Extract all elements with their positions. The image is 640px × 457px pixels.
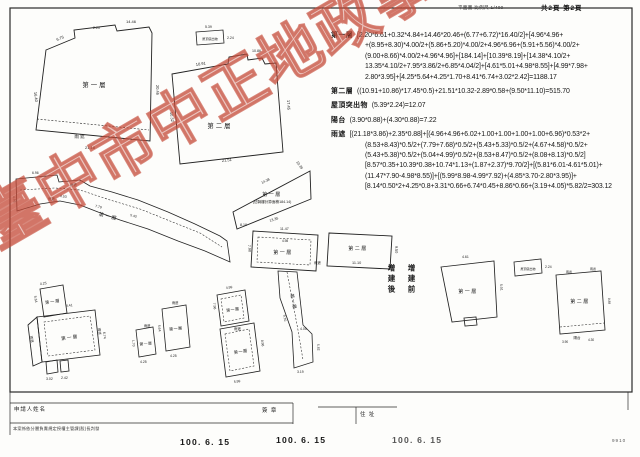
dimension-label: 4.96	[12, 196, 17, 203]
dimension-label: 5.64	[157, 325, 162, 332]
floor2-label: 第二層	[207, 121, 232, 130]
dimension-label: 4.61	[462, 255, 469, 259]
date-stamp: 100. 6. 15	[276, 435, 326, 445]
canopy-calc-line: (8.53+8.43)*0.5/2+(7.79+7.68)*0.5/2+(5.4…	[365, 141, 634, 151]
dimension-label: 2.42	[61, 376, 68, 380]
floor2-label: 第二層	[570, 298, 590, 305]
canopy-calculation: 雨遮 [(21.18*3.86)+2.35*0.88]+[(4.96+4.96+…	[331, 130, 634, 192]
dimension-label: 6.74	[102, 332, 107, 339]
floor1-calc-line: 13.35*4.10/2+7.95*3.86/2+6.85*4.04/2]+[4…	[365, 62, 634, 72]
floor1-calc-label: 第一層	[331, 32, 353, 39]
dimension-label: 8.41	[66, 303, 73, 308]
dimension-label: 7.90	[247, 245, 252, 252]
roof-calc-line: (5.39*2.24)=12.07	[372, 102, 426, 109]
canopy-label: 雨遮	[70, 182, 77, 187]
corridor-band-outline	[16, 175, 230, 262]
dimension-label: 9.70	[282, 314, 287, 321]
dimension-label: 4.05	[300, 327, 307, 331]
dimension-label: 4.25	[170, 354, 177, 358]
dimension-label: 6.96	[32, 171, 39, 175]
floor1-label: 第一層	[226, 305, 240, 313]
canopy-label: 雨遮	[566, 269, 572, 274]
floor1-calculation: 第一層 [2.20*6.61+0.32*4.84+14.46*20.46+(6.…	[331, 31, 634, 83]
roof-calculation: 屋頂突出物 (5.39*2.24)=12.07	[331, 101, 634, 111]
dimension-label: 2.24	[545, 265, 552, 269]
corner-code: 9910	[612, 438, 626, 443]
dimension-label: 4.30	[588, 338, 594, 342]
dimension-label: 10.91	[195, 60, 206, 67]
dimension-label: 5.64	[33, 295, 38, 302]
delegation-disclaimer: 本案係依分層負責規定授權主管課(股)長判發	[13, 426, 100, 432]
dimension-label: 5.39	[205, 25, 212, 29]
canopy-calc-line: (11.47*7.90-4.98*8.55)]+[(5.99*8.98-4.99…	[365, 172, 634, 182]
roof-protrusion-label: 屋頂突出物	[520, 266, 535, 271]
dimension-label: 14.46	[126, 19, 137, 24]
dimension-label: 2.20	[93, 26, 100, 30]
floor1-calc-line: (9.00+8.66)*4.00/2+4.96*4.96]+[184.14]+[…	[365, 52, 634, 62]
dimension-label: 14.38	[261, 177, 271, 185]
canopy-label: 雨遮	[172, 300, 179, 305]
dimension-label: 2.24	[227, 36, 234, 40]
applicant-name-label: 申請人姓名	[14, 405, 46, 413]
balcony-label: 陽台	[574, 335, 582, 340]
balcony-calc-label: 陽台	[331, 117, 346, 124]
floor1-label: 第一層	[139, 340, 152, 346]
dimension-label: 10.39	[295, 160, 303, 170]
dimension-label: 4.25	[40, 281, 47, 286]
dimension-label: 4.25	[140, 360, 147, 364]
floor2-label: 第二層	[348, 245, 368, 252]
floor1-label: 第一層	[233, 347, 248, 356]
canopy-calc-line: [(21.18*3.86)+2.35*0.88]+[(4.96+4.96+6.0…	[350, 131, 590, 138]
dimension-label: 6.75	[56, 34, 66, 42]
floor1-twopart-outline	[217, 290, 260, 377]
scale-label: 平面圖 比例尺 1/400	[458, 5, 504, 11]
survey-plat-page: 第一層 雨遮 6.75 14.46 20.46 16.40 21.18 2.20…	[0, 0, 640, 457]
dimension-label: 21.51	[222, 157, 233, 163]
floor1-label: 第一層	[169, 324, 183, 331]
floor1-calc-line: [2.20*6.61+0.32*4.84+14.46*20.46+(6.77+6…	[357, 32, 563, 39]
floor1-calc-line: 2.80*3.95]+[4.25*5.64+4.25*1.70+8.41*6.7…	[365, 73, 634, 83]
canopy-label: 雨遮	[590, 266, 596, 271]
dimension-label: 0.88	[607, 298, 611, 305]
before-addition-note: 增建前	[406, 264, 417, 296]
footer-rules	[10, 392, 628, 435]
page-number-label: 共2頁 第2頁	[541, 3, 582, 12]
canopy-calc-line: (5.43+5.38)*0.5/2+(5.04+4.99)*0.5/2+(8.5…	[365, 151, 634, 161]
floor1-label: 第一層	[82, 80, 107, 89]
dimension-label: 5.43	[130, 213, 138, 219]
canopy-calc-line: [8.14*0.50*2+4.25*0.8+3.31*0.66+6.74*0.4…	[365, 182, 634, 192]
dimension-label: 1.70	[131, 340, 136, 347]
floor1-label: 第一層	[273, 249, 293, 256]
canopy-calc-line: [8.57*0.35+10.39*0.38+10.74*1.13+(1.87+2…	[365, 161, 634, 171]
canopy-label: 雨遮	[74, 133, 85, 140]
dimension-label: 10.86	[252, 49, 261, 53]
canopy-label: 雨遮	[97, 328, 103, 336]
dimension-label: 9.50	[394, 246, 398, 254]
dimension-label: 4.99	[226, 285, 233, 290]
dimension-label: 5.01	[499, 284, 504, 291]
address-label: 住 址	[360, 410, 375, 418]
after-addition-note: 增建後	[386, 264, 397, 296]
arcade-area-note: (佔騎樓計算面積184.14)	[253, 199, 292, 204]
dimension-label: 5.82	[316, 344, 321, 351]
dimension-label: 3.90	[562, 340, 568, 344]
canopy-label: 雨遮	[314, 260, 321, 265]
dimension-label: 20.46	[155, 85, 160, 96]
balcony-calc-line: (3.90*0.88)+(4.30*0.88)=7.22	[350, 117, 437, 124]
canopy-calc-label: 雨遮	[331, 131, 346, 138]
dimension-label: 4.98	[282, 239, 288, 243]
floor1-label: 第一層	[61, 333, 79, 342]
floor1-label: 第一層	[98, 211, 119, 223]
floor2-main-outline	[172, 54, 283, 164]
dimension-label: 11.47	[280, 227, 289, 231]
signature-label: 簽 章	[262, 406, 277, 414]
dimension-label: 17.45	[286, 100, 292, 111]
date-stamp: 100. 6. 15	[180, 437, 230, 447]
dimension-label: 8.98	[260, 340, 265, 347]
dimension-label: 7.79	[95, 204, 102, 210]
area-calculations: 第一層 [2.20*6.61+0.32*4.84+14.46*20.46+(6.…	[331, 31, 634, 197]
date-stamp: 100. 6. 15	[392, 435, 442, 445]
dimension-label: 11.10	[352, 261, 361, 265]
roof-calc-label: 屋頂突出物	[331, 102, 368, 109]
balcony-calculation: 陽台 (3.90*0.88)+(4.30*0.88)=7.22	[331, 116, 634, 126]
floor1-label: 第一層	[45, 297, 61, 306]
dimension-label: 10.32	[169, 112, 175, 123]
dimension-label: 3.02	[46, 377, 53, 381]
dimension-label: 5.99	[234, 379, 241, 384]
floor1-label: 第一層	[288, 293, 298, 310]
dimension-label: 16.40	[33, 92, 39, 103]
floor2-calc-line: ((10.91+10.86)*17.45*0.5)+21.51*10.32-2.…	[357, 88, 570, 95]
canopy-label: 雨遮	[234, 326, 241, 331]
floor1-cluster-outline	[28, 285, 100, 374]
floor1-label: 第一層	[262, 191, 282, 198]
dimension-label: 3.19	[297, 370, 304, 374]
dimension-label: 7.98	[212, 303, 217, 310]
floor2-calc-label: 第二層	[331, 88, 353, 95]
canopy-label: 雨遮	[144, 323, 151, 328]
dimension-label: 8.53	[60, 194, 67, 199]
floor1-calc-line: +(8.95+8.30)*4.00/2+(5.86+5.20)*4.00/2+4…	[365, 41, 634, 51]
dimension-label: 13.35	[269, 216, 279, 223]
roof-protrusion-label: 屋頂突出物	[202, 36, 217, 41]
floor1-small-outlines	[136, 305, 190, 357]
dimension-label: 21.18	[85, 145, 96, 150]
floor1-label: 第一層	[458, 288, 478, 295]
floor2-calculation: 第二層 ((10.91+10.86)*17.45*0.5)+21.51*10.3…	[331, 87, 634, 97]
dimension-label: 8.19	[240, 223, 247, 227]
canopy-label: 雨遮	[48, 196, 55, 201]
